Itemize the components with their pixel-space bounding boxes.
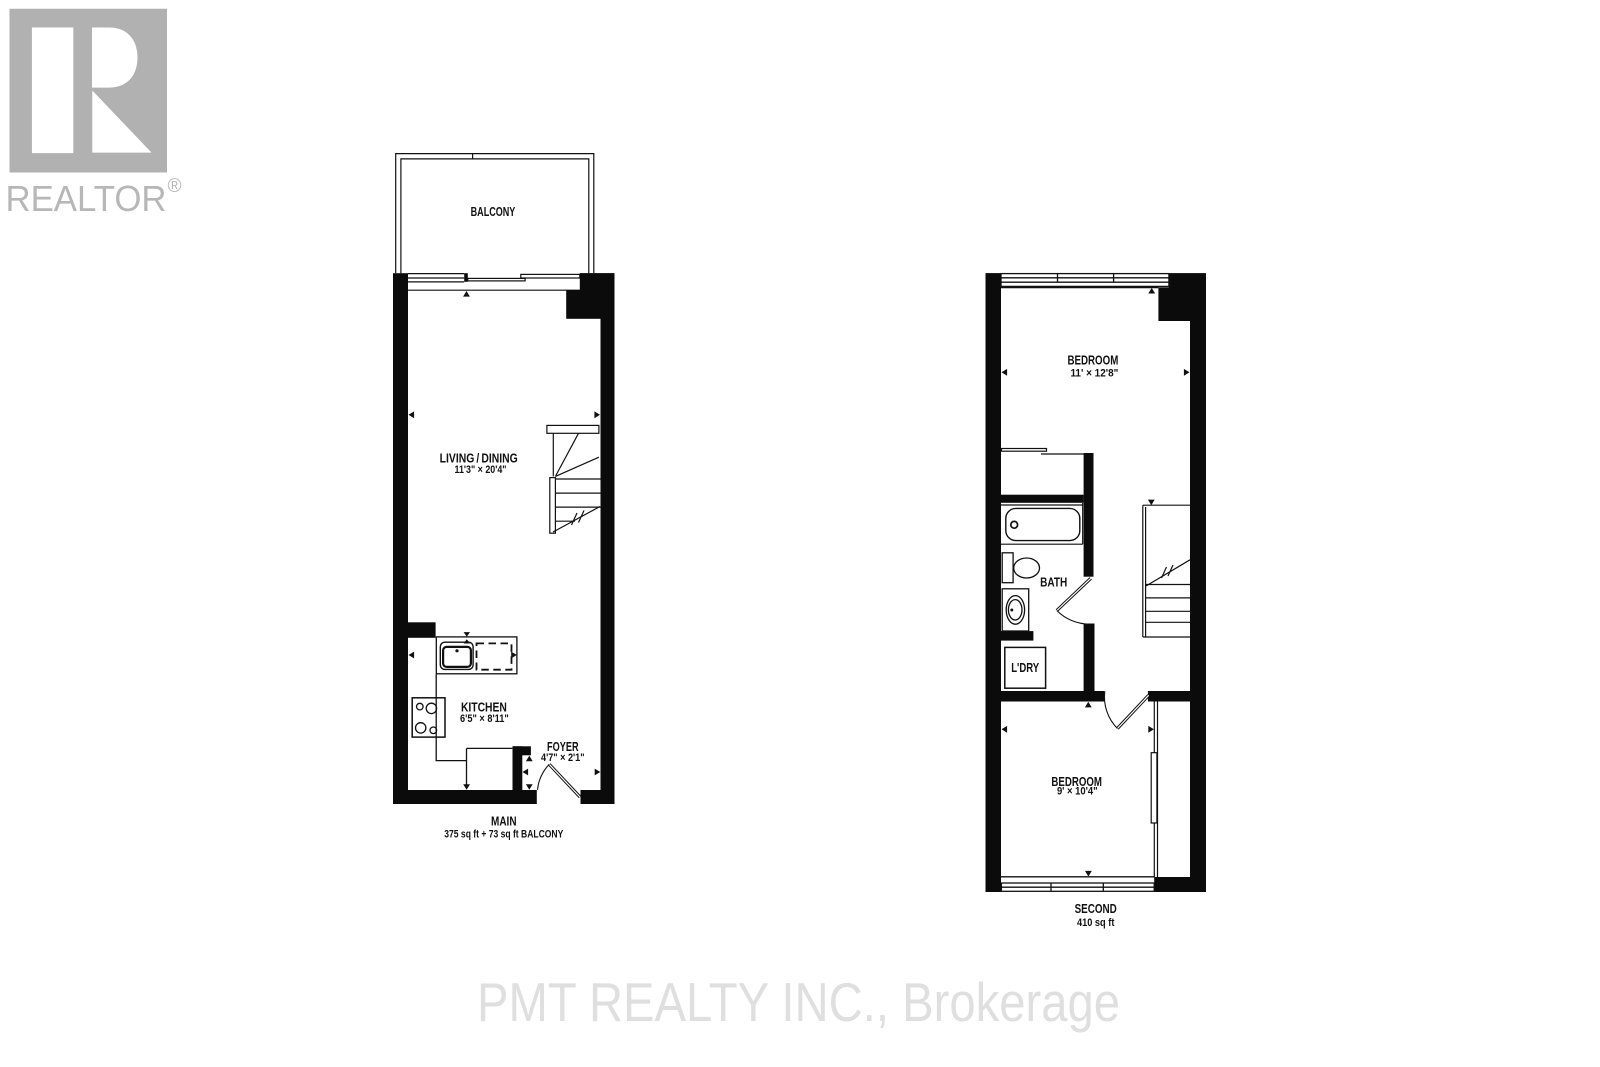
svg-text:SECOND: SECOND xyxy=(1075,902,1117,916)
svg-text:BATH: BATH xyxy=(1040,576,1067,590)
svg-text:4'7" × 2'1": 4'7" × 2'1" xyxy=(541,752,585,764)
svg-text:11'3" × 20'4": 11'3" × 20'4" xyxy=(455,464,507,476)
svg-text:®: ® xyxy=(168,176,182,197)
svg-text:BALCONY: BALCONY xyxy=(471,205,516,219)
svg-text:6'5" × 8'11": 6'5" × 8'11" xyxy=(460,713,509,725)
svg-text:MAIN: MAIN xyxy=(491,815,517,829)
svg-text:PMT REALTY INC., Brokerage: PMT REALTY INC., Brokerage xyxy=(477,971,1120,1033)
svg-text:BEDROOM: BEDROOM xyxy=(1068,354,1119,368)
svg-text:410 sq ft: 410 sq ft xyxy=(1077,917,1115,929)
svg-text:11' × 12'8": 11' × 12'8" xyxy=(1070,368,1118,380)
svg-text:L'DRY: L'DRY xyxy=(1011,661,1039,675)
svg-text:375 sq ft + 73 sq ft BALCONY: 375 sq ft + 73 sq ft BALCONY xyxy=(444,829,564,841)
svg-text:9' × 10'4": 9' × 10'4" xyxy=(1057,786,1098,798)
svg-text:REALTOR: REALTOR xyxy=(6,178,167,219)
